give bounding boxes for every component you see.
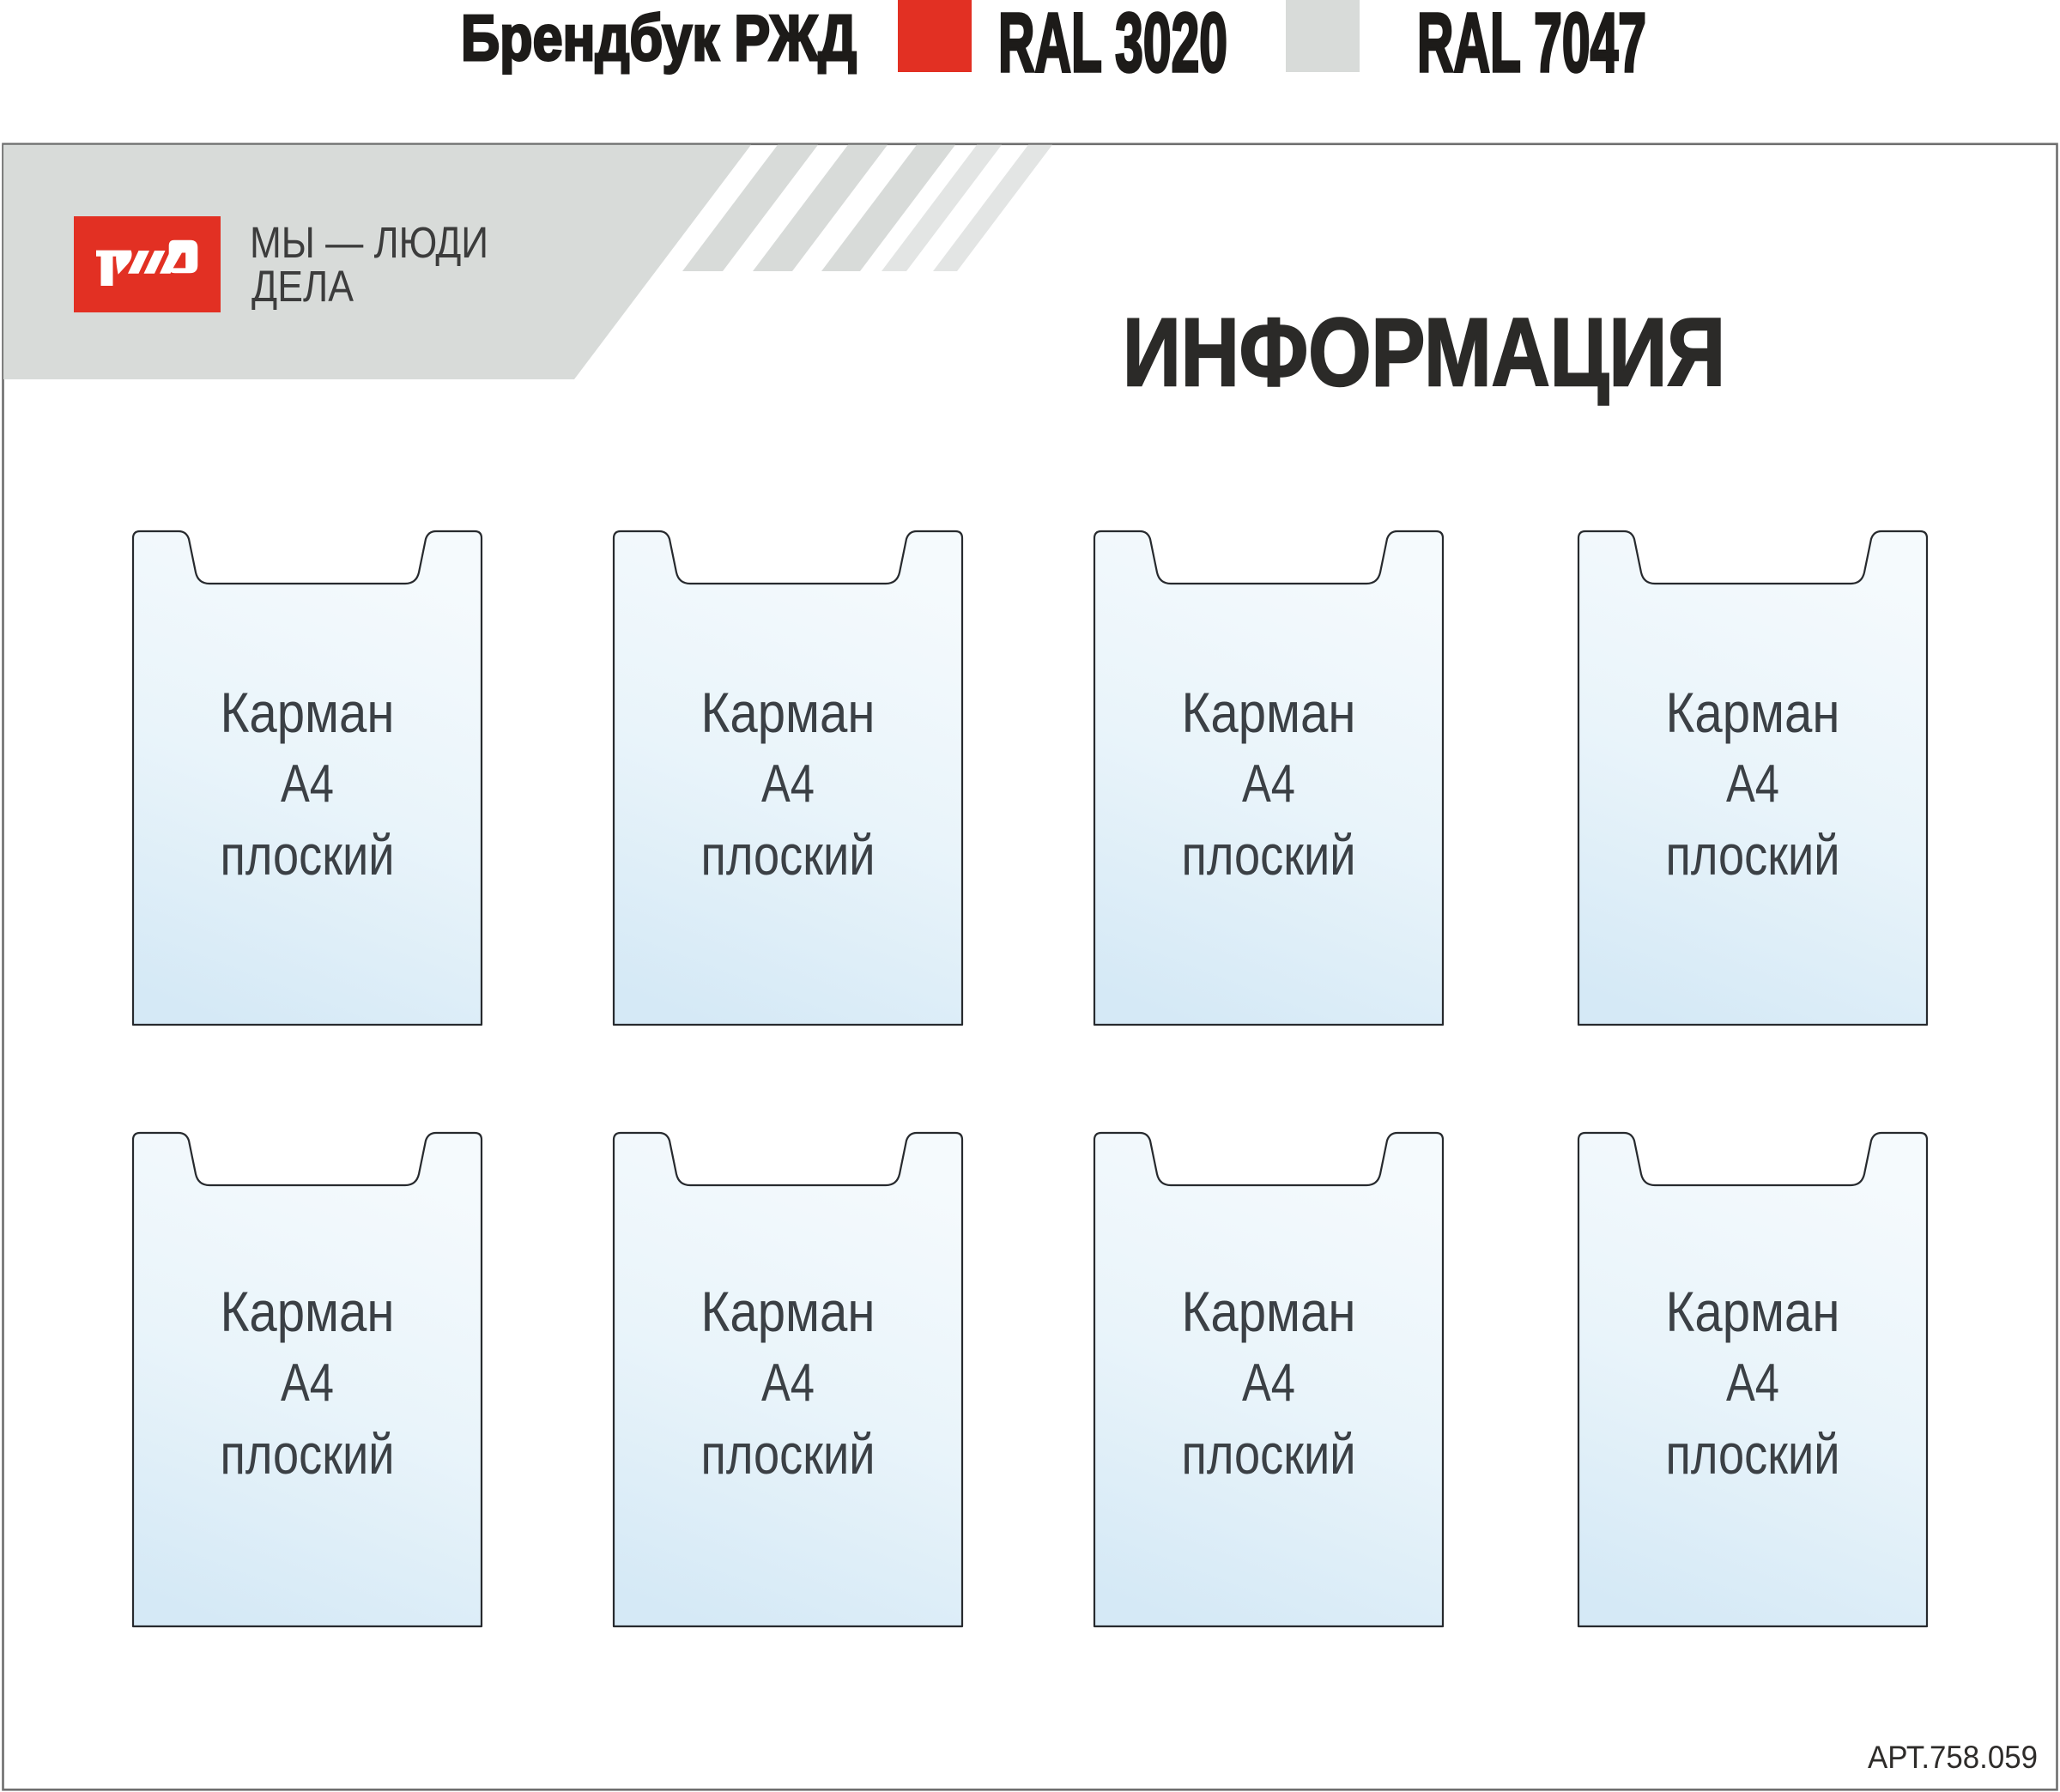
svg-text:Карман: Карман <box>221 1280 395 1343</box>
svg-text:А4: А4 <box>281 754 334 814</box>
svg-text:RAL 7047: RAL 7047 <box>1417 0 1646 89</box>
svg-text:плоский: плоский <box>221 1422 395 1486</box>
svg-text:плоский: плоский <box>701 823 875 887</box>
svg-text:А4: А4 <box>281 1353 334 1413</box>
svg-text:плоский: плоский <box>1182 823 1356 887</box>
svg-text:Брендбук РЖД: Брендбук РЖД <box>461 2 857 74</box>
svg-text:Карман: Карман <box>701 681 875 744</box>
svg-text:плоский: плоский <box>1666 823 1840 887</box>
svg-text:МЫ — ЛЮДИ: МЫ — ЛЮДИ <box>250 218 488 267</box>
svg-text:А4: А4 <box>761 754 815 814</box>
svg-text:А4: А4 <box>1242 754 1295 814</box>
svg-text:Карман: Карман <box>1666 1280 1840 1343</box>
svg-text:Карман: Карман <box>1666 681 1840 744</box>
svg-text:ДЕЛА: ДЕЛА <box>251 262 354 311</box>
svg-text:плоский: плоский <box>1182 1422 1356 1486</box>
svg-text:плоский: плоский <box>701 1422 875 1486</box>
svg-text:Карман: Карман <box>1182 681 1356 744</box>
svg-text:плоский: плоский <box>221 823 395 887</box>
svg-text:ИНФОРМАЦИЯ: ИНФОРМАЦИЯ <box>1123 299 1725 406</box>
svg-text:Карман: Карман <box>1182 1280 1356 1343</box>
svg-text:Карман: Карман <box>221 681 395 744</box>
svg-text:Карман: Карман <box>701 1280 875 1343</box>
svg-text:А4: А4 <box>761 1353 815 1413</box>
svg-text:RAL 3020: RAL 3020 <box>998 0 1227 89</box>
svg-text:А4: А4 <box>1242 1353 1295 1413</box>
svg-text:плоский: плоский <box>1666 1422 1840 1486</box>
svg-text:А4: А4 <box>1726 754 1779 814</box>
svg-text:А4: А4 <box>1726 1353 1779 1413</box>
svg-text:АРТ.758.059: АРТ.758.059 <box>1868 1740 2038 1775</box>
